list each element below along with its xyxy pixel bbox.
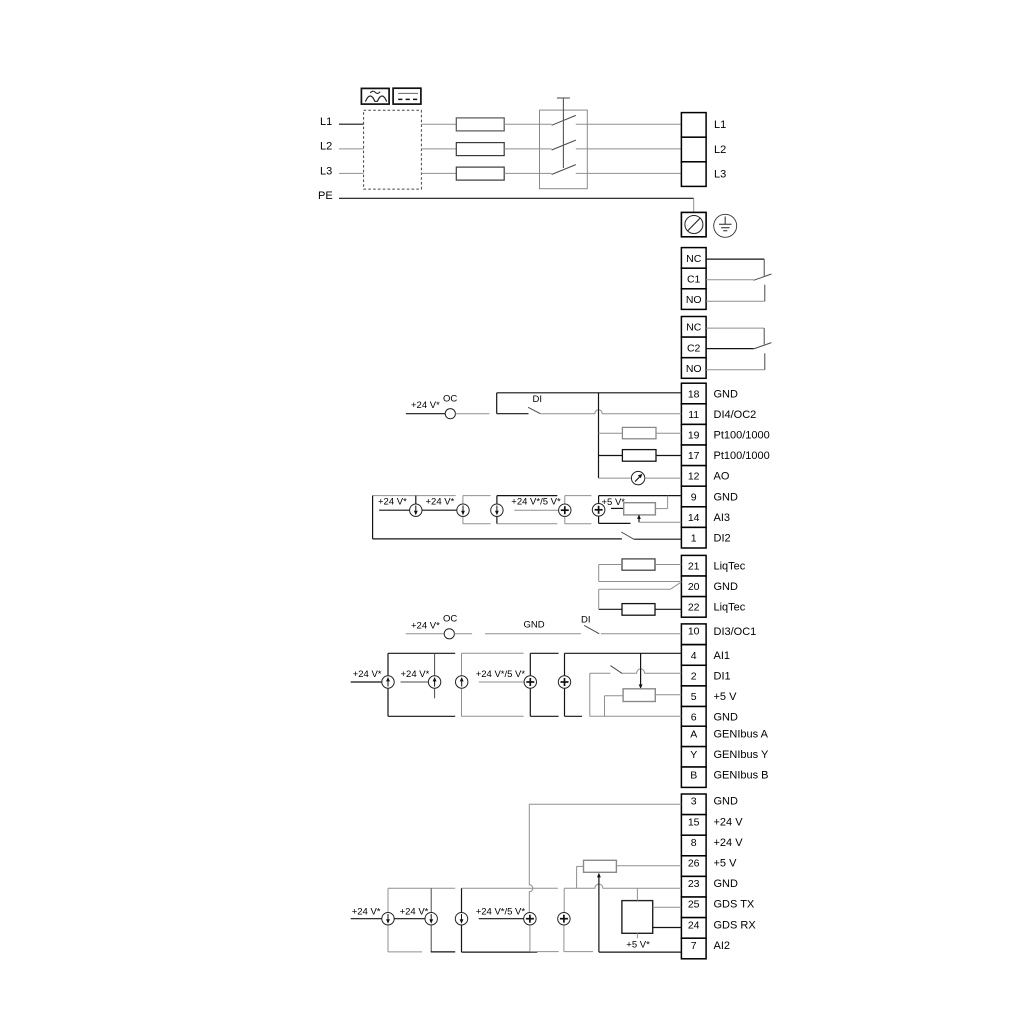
svg-text:+24 V*/5 V*: +24 V*/5 V* (476, 907, 526, 918)
svg-text:OC: OC (443, 394, 457, 405)
svg-text:GDS RX: GDS RX (714, 919, 757, 931)
svg-text:+24 V*: +24 V* (401, 669, 430, 680)
svg-text:3: 3 (691, 796, 697, 808)
svg-text:17: 17 (688, 450, 700, 462)
svg-text:14: 14 (688, 512, 700, 524)
svg-text:C1: C1 (687, 273, 701, 285)
svg-text:B: B (690, 769, 697, 781)
svg-text:AO: AO (714, 471, 730, 483)
svg-text:AI2: AI2 (714, 940, 731, 952)
svg-text:GND: GND (714, 491, 739, 503)
svg-text:5: 5 (691, 691, 697, 703)
svg-text:+24 V*: +24 V* (411, 400, 440, 411)
svg-text:+24 V*: +24 V* (352, 907, 381, 918)
svg-text:+5 V: +5 V (714, 858, 738, 870)
svg-text:+24 V*: +24 V* (411, 620, 440, 631)
svg-text:+24 V: +24 V (714, 816, 744, 828)
svg-text:DI1: DI1 (714, 670, 731, 682)
svg-text:AI3: AI3 (714, 512, 731, 524)
svg-text:L1: L1 (714, 119, 726, 131)
svg-text:8: 8 (691, 837, 697, 849)
svg-text:4: 4 (691, 650, 697, 662)
svg-text:22: 22 (688, 602, 700, 614)
svg-text:L2: L2 (714, 144, 726, 156)
svg-text:DI4/OC2: DI4/OC2 (714, 409, 757, 421)
svg-text:L2: L2 (320, 141, 332, 153)
svg-text:GND: GND (714, 796, 739, 808)
svg-text:NO: NO (686, 294, 702, 306)
svg-text:2: 2 (691, 670, 697, 682)
svg-text:LiqTec: LiqTec (714, 602, 746, 614)
svg-text:+24 V*: +24 V* (353, 669, 382, 680)
svg-text:+24 V*/5 V*: +24 V*/5 V* (476, 669, 526, 680)
svg-text:9: 9 (691, 491, 697, 503)
svg-text:23: 23 (688, 878, 700, 890)
svg-text:+24 V*: +24 V* (400, 907, 429, 918)
svg-text:OC: OC (443, 614, 457, 625)
svg-text:GND: GND (714, 581, 739, 593)
svg-text:15: 15 (688, 816, 700, 828)
svg-text:21: 21 (688, 561, 700, 573)
svg-text:12: 12 (688, 471, 700, 483)
svg-text:DI3/OC1: DI3/OC1 (714, 626, 757, 638)
svg-text:11: 11 (688, 409, 699, 421)
svg-text:AI1: AI1 (714, 650, 731, 662)
svg-text:+24 V*/5 V*: +24 V*/5 V* (511, 497, 561, 508)
svg-text:19: 19 (688, 430, 700, 442)
svg-text:Pt100/1000: Pt100/1000 (714, 430, 770, 442)
svg-text:25: 25 (688, 899, 700, 911)
svg-text:DI2: DI2 (714, 533, 731, 545)
svg-text:GND: GND (714, 712, 739, 724)
svg-text:DI: DI (533, 394, 543, 405)
svg-text:C2: C2 (687, 342, 701, 354)
svg-text:20: 20 (688, 581, 700, 593)
svg-text:NC: NC (686, 322, 702, 334)
svg-text:GND: GND (714, 388, 739, 400)
svg-text:GENIbus Y: GENIbus Y (714, 749, 769, 761)
svg-text:L3: L3 (320, 165, 332, 177)
svg-text:NC: NC (686, 253, 702, 265)
svg-text:+24 V*: +24 V* (378, 497, 407, 508)
svg-text:+5 V*: +5 V* (626, 940, 650, 951)
svg-text:L1: L1 (320, 116, 332, 128)
svg-text:A: A (690, 728, 697, 740)
svg-text:+5 V: +5 V (714, 691, 738, 703)
svg-text:GND: GND (524, 620, 545, 631)
svg-text:Pt100/1000: Pt100/1000 (714, 450, 770, 462)
svg-text:L3: L3 (714, 168, 726, 180)
svg-text:+24 V*: +24 V* (426, 497, 455, 508)
svg-text:GDS TX: GDS TX (714, 899, 755, 911)
svg-text:18: 18 (688, 388, 700, 400)
svg-text:NO: NO (686, 363, 702, 375)
svg-text:24: 24 (688, 919, 700, 931)
svg-text:DI: DI (581, 615, 591, 626)
svg-text:10: 10 (688, 626, 700, 638)
svg-text:LiqTec: LiqTec (714, 561, 746, 573)
svg-text:GENIbus A: GENIbus A (714, 728, 769, 740)
svg-text:GENIbus B: GENIbus B (714, 769, 769, 781)
svg-text:Y: Y (690, 749, 697, 761)
svg-text:6: 6 (691, 712, 697, 724)
svg-text:1: 1 (691, 533, 697, 545)
svg-text:26: 26 (688, 858, 700, 870)
svg-text:+24 V: +24 V (714, 837, 744, 849)
svg-text:+5 V*: +5 V* (602, 497, 626, 508)
svg-text:PE: PE (318, 190, 333, 202)
svg-text:7: 7 (691, 940, 697, 952)
svg-text:GND: GND (714, 878, 739, 890)
